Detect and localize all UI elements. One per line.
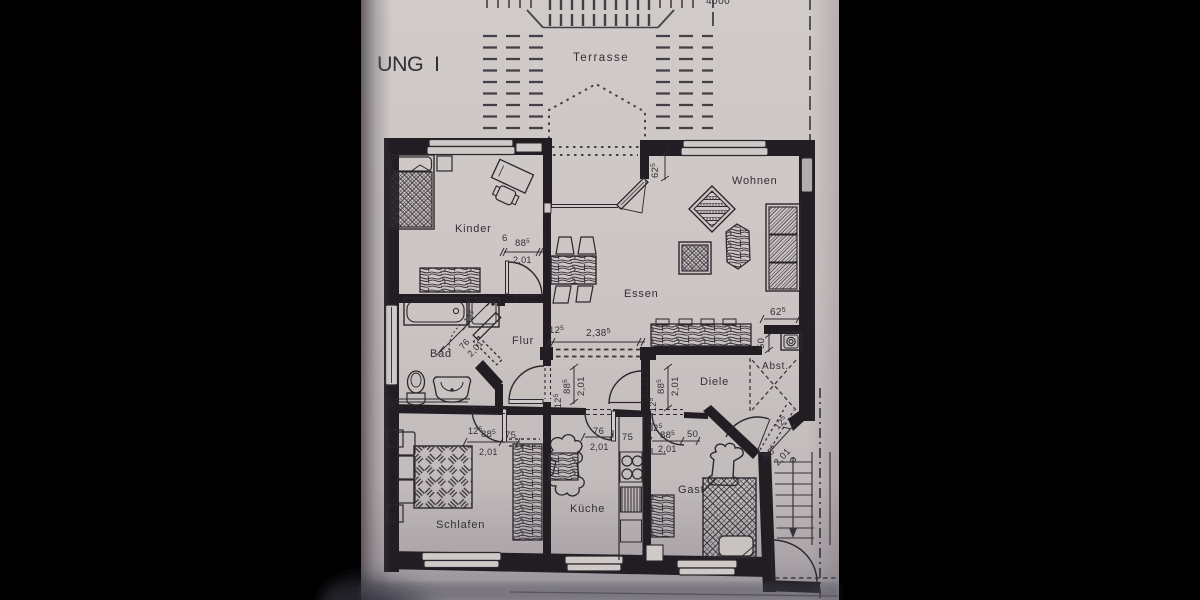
svg-text:Gast: Gast: [678, 484, 704, 496]
svg-text:2,01: 2,01: [658, 444, 677, 454]
svg-text:76: 76: [593, 426, 604, 437]
svg-text:Kinder: Kinder: [455, 223, 492, 235]
svg-text:Abst.: Abst.: [762, 361, 789, 372]
svg-text:4000: 4000: [706, 0, 730, 7]
svg-text:2,01: 2,01: [576, 376, 587, 396]
svg-text:Diele: Diele: [700, 376, 729, 388]
svg-text:50: 50: [756, 338, 767, 349]
svg-text:Küche: Küche: [570, 503, 605, 515]
svg-text:6: 6: [502, 233, 508, 244]
svg-text:2,01: 2,01: [670, 376, 681, 396]
svg-text:75: 75: [622, 432, 633, 443]
svg-text:2,01: 2,01: [590, 442, 609, 452]
svg-text:Essen: Essen: [624, 288, 659, 300]
svg-text:Bad: Bad: [430, 348, 452, 360]
svg-text:75: 75: [505, 430, 516, 441]
svg-text:Terrasse: Terrasse: [573, 52, 629, 64]
svg-text:50: 50: [687, 429, 698, 440]
svg-text:2,01: 2,01: [479, 447, 498, 457]
svg-text:Wohnen: Wohnen: [732, 175, 778, 187]
svg-text:Flur: Flur: [512, 335, 534, 347]
svg-text:2,01: 2,01: [513, 255, 532, 265]
svg-text:Schlafen: Schlafen: [436, 519, 485, 531]
